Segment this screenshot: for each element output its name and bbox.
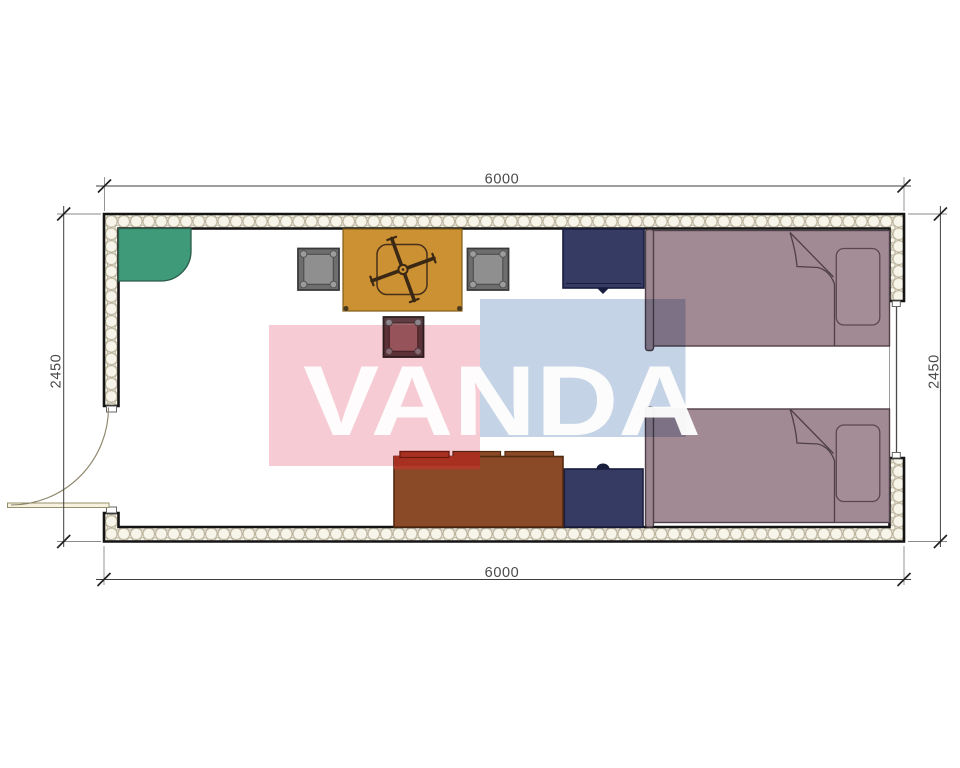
svg-text:6000: 6000 [485, 172, 520, 188]
svg-text:2450: 2450 [49, 354, 65, 389]
svg-text:6000: 6000 [485, 565, 520, 581]
svg-text:VANDA: VANDA [303, 345, 701, 456]
svg-text:2450: 2450 [927, 354, 943, 389]
